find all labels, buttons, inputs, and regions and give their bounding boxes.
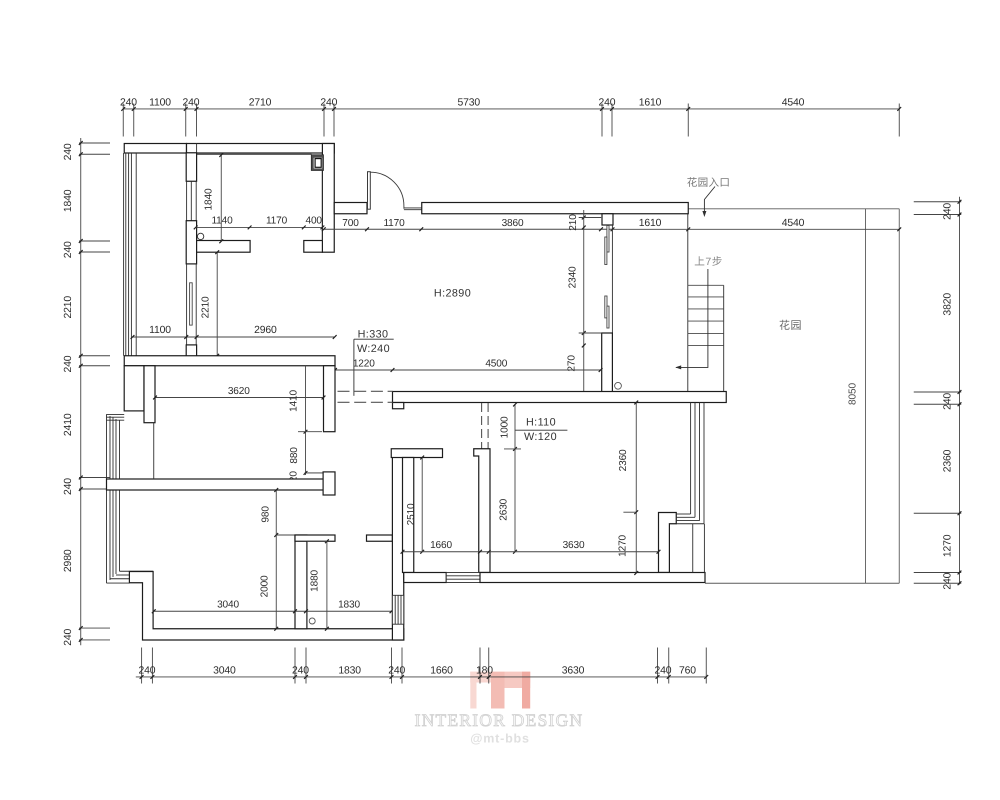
svg-text:8050: 8050 — [848, 383, 859, 405]
svg-text:2000: 2000 — [260, 575, 271, 597]
svg-text:1410: 1410 — [288, 390, 299, 412]
svg-text:240: 240 — [63, 478, 74, 495]
svg-text:240: 240 — [943, 572, 954, 589]
svg-text:1270: 1270 — [943, 534, 954, 557]
svg-text:INTERIOR DESIGN: INTERIOR DESIGN — [415, 710, 584, 730]
svg-text:760: 760 — [679, 665, 696, 676]
svg-text:240: 240 — [63, 628, 74, 645]
svg-text:2710: 2710 — [249, 97, 272, 108]
svg-text:4540: 4540 — [782, 97, 805, 108]
svg-text:980: 980 — [261, 506, 272, 523]
svg-text:2410: 2410 — [63, 413, 74, 436]
svg-text:3040: 3040 — [213, 665, 236, 676]
svg-text:270: 270 — [567, 355, 578, 372]
svg-text:1830: 1830 — [338, 665, 361, 676]
svg-text:3860: 3860 — [502, 218, 524, 229]
svg-text:240: 240 — [943, 393, 954, 410]
svg-text:1610: 1610 — [639, 218, 662, 229]
svg-text:3630: 3630 — [563, 540, 585, 551]
svg-text:1140: 1140 — [211, 215, 233, 226]
svg-text:1170: 1170 — [383, 218, 405, 229]
svg-text:1660: 1660 — [430, 665, 453, 676]
svg-text:W:240: W:240 — [357, 343, 390, 355]
svg-text:1610: 1610 — [639, 97, 662, 108]
svg-text:1170: 1170 — [266, 215, 288, 226]
svg-text:3620: 3620 — [228, 386, 250, 397]
svg-text:1840: 1840 — [63, 189, 74, 212]
svg-text:H:110: H:110 — [526, 416, 556, 428]
svg-text:1840: 1840 — [203, 188, 214, 210]
svg-text:240: 240 — [599, 97, 616, 108]
svg-text:240: 240 — [655, 665, 672, 676]
svg-text:5730: 5730 — [458, 97, 481, 108]
svg-text:880: 880 — [289, 447, 300, 464]
svg-text:2210: 2210 — [63, 296, 74, 319]
svg-text:H:2890: H:2890 — [434, 287, 471, 299]
svg-text:2980: 2980 — [63, 549, 74, 572]
svg-text:1100: 1100 — [149, 97, 171, 108]
svg-text:1660: 1660 — [430, 540, 452, 551]
svg-text:700: 700 — [342, 218, 359, 229]
svg-text:2340: 2340 — [568, 266, 579, 288]
svg-text:W:120: W:120 — [524, 431, 557, 443]
svg-text:3630: 3630 — [562, 665, 585, 676]
svg-text:1270: 1270 — [618, 534, 629, 556]
svg-text:4500: 4500 — [485, 359, 507, 370]
svg-text:2360: 2360 — [943, 449, 954, 472]
svg-text:1880: 1880 — [310, 569, 321, 591]
svg-text:240: 240 — [183, 97, 200, 108]
svg-text:1100: 1100 — [149, 325, 171, 336]
svg-text:1830: 1830 — [338, 599, 360, 610]
svg-text:240: 240 — [63, 355, 74, 372]
svg-text:H:330: H:330 — [358, 328, 389, 340]
svg-text:上7步: 上7步 — [694, 256, 723, 268]
svg-text:3820: 3820 — [943, 293, 954, 316]
svg-text:花园入口: 花园入口 — [687, 177, 731, 189]
svg-text:240: 240 — [120, 97, 137, 108]
svg-text:240: 240 — [320, 97, 337, 108]
svg-text:180: 180 — [476, 665, 493, 676]
svg-text:210: 210 — [568, 214, 579, 231]
svg-text:240: 240 — [943, 203, 954, 220]
svg-text:2360: 2360 — [618, 449, 629, 471]
svg-text:2960: 2960 — [254, 325, 277, 336]
svg-text:240: 240 — [63, 143, 74, 160]
svg-text:240: 240 — [63, 241, 74, 258]
svg-text:1000: 1000 — [500, 416, 511, 438]
svg-text:4540: 4540 — [782, 218, 805, 229]
svg-text:1220: 1220 — [353, 359, 375, 370]
svg-text:@mt-bbs: @mt-bbs — [470, 732, 529, 746]
svg-text:240: 240 — [292, 665, 309, 676]
svg-text:240: 240 — [388, 665, 405, 676]
svg-text:240: 240 — [139, 665, 156, 676]
svg-text:3040: 3040 — [217, 599, 239, 610]
svg-text:2210: 2210 — [201, 296, 212, 318]
svg-text:2630: 2630 — [499, 498, 510, 520]
svg-text:400: 400 — [305, 215, 322, 226]
svg-text:2510: 2510 — [406, 503, 417, 525]
svg-text:花园: 花园 — [779, 319, 802, 332]
